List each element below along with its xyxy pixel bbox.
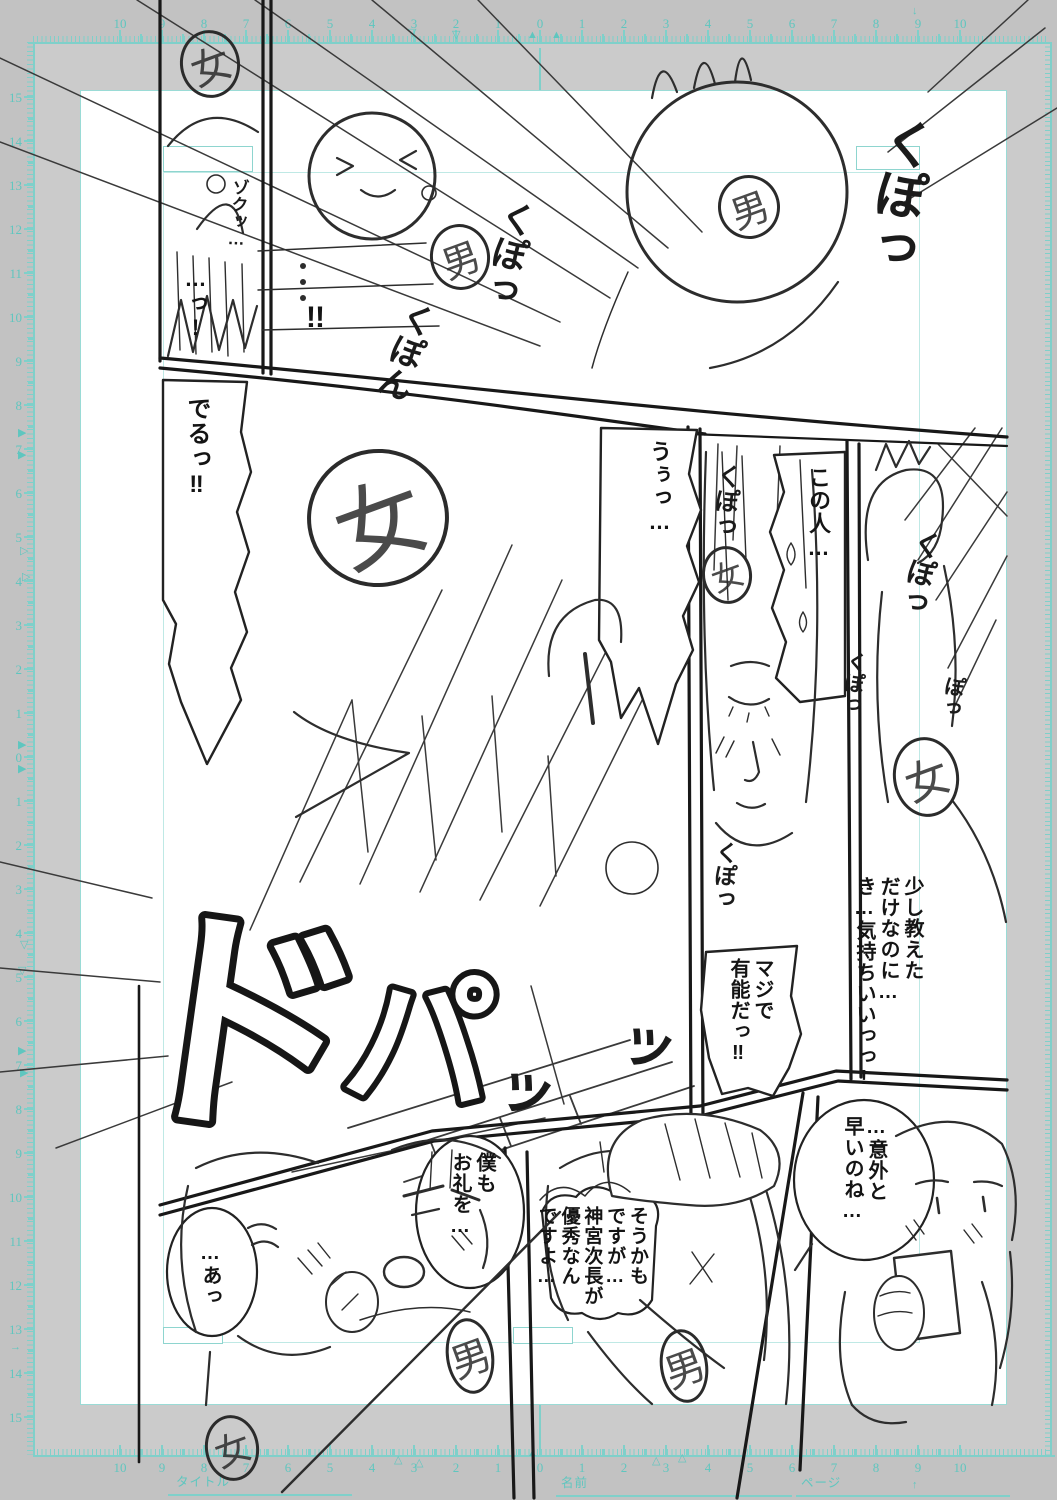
manga-draft-page: 1010998877665544332211001122334455667788… — [0, 0, 1057, 1500]
sfx-outline-text: ド — [106, 878, 381, 1177]
sfx-outline-text: パ — [338, 954, 499, 1132]
pencil-sketch: ドパ — [0, 0, 1057, 1500]
